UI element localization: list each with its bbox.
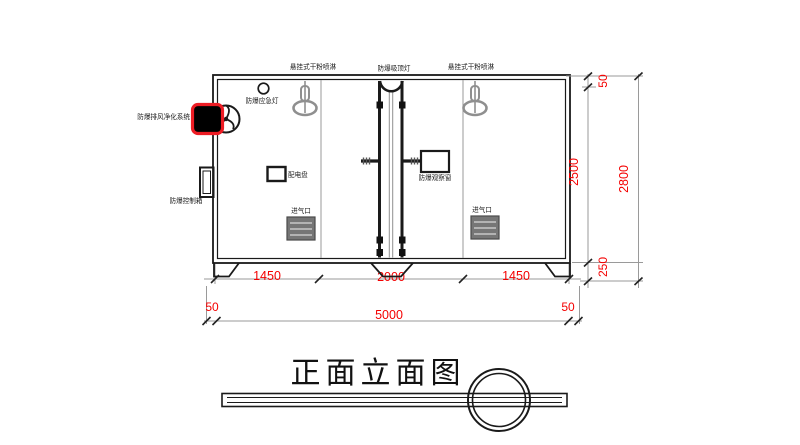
dimension-ticks xyxy=(584,73,643,286)
sprinkler-icon-right xyxy=(464,81,487,115)
dim-250: 250 xyxy=(596,257,610,277)
drawing-title: 正面立面图 xyxy=(291,357,466,390)
label-control-box: 防爆控制箱 xyxy=(170,196,203,205)
dim-1450-right: 1450 xyxy=(502,269,530,283)
fan-hub xyxy=(224,117,228,121)
section-circle xyxy=(468,369,530,431)
duct-node xyxy=(377,237,384,244)
duct-node xyxy=(377,102,384,109)
emergency-light-icon xyxy=(258,83,269,94)
dim-5000-total: 5000 xyxy=(375,308,403,322)
label-air-inlet-right: 进气口 xyxy=(472,205,492,214)
air-inlet-louver-right xyxy=(471,216,499,239)
ceiling-lamp-dome xyxy=(380,81,403,91)
label-ceiling-lamp: 防爆吸顶灯 xyxy=(378,64,411,73)
booth-inner-wall xyxy=(218,80,566,259)
observation-window xyxy=(421,151,449,172)
dim-2800: 2800 xyxy=(617,165,631,193)
elevation-drawing: 1450 2000 1450 50 5000 50 50 xyxy=(0,0,800,445)
support-foot-left xyxy=(214,263,239,277)
duct-node xyxy=(399,237,406,244)
title-block: 正面立面图 xyxy=(222,357,567,431)
distribution-panel xyxy=(268,167,286,181)
dim-50-bottom-right: 50 xyxy=(561,300,575,314)
label-purification-system: 防爆排风净化系统 xyxy=(137,112,190,121)
duct-node xyxy=(377,249,384,256)
control-box xyxy=(200,168,214,198)
dim-50-right-top: 50 xyxy=(596,74,610,88)
air-inlet-louver-left xyxy=(287,217,315,240)
label-sprinkler-right: 悬挂式干粉喷淋 xyxy=(448,62,495,71)
purification-unit xyxy=(193,105,240,134)
dim-2500: 2500 xyxy=(567,158,581,186)
label-emergency-light: 防爆应急灯 xyxy=(246,96,279,105)
label-air-inlet-left: 进气口 xyxy=(291,206,311,215)
section-rod xyxy=(222,394,567,407)
label-distribution-panel: 配电盘 xyxy=(288,170,308,179)
duct-node xyxy=(399,249,406,256)
dim-1450-left: 1450 xyxy=(253,269,281,283)
exhaust-duct xyxy=(361,81,420,258)
component-labels: 悬挂式干粉喷淋 防爆吸顶灯 悬挂式干粉喷淋 防爆应急灯 防爆排风净化系统 防爆控… xyxy=(137,62,494,215)
duct-node xyxy=(399,102,406,109)
sprinkler-icon-left xyxy=(294,81,317,115)
purification-box xyxy=(193,105,223,134)
dim-50-bottom-left: 50 xyxy=(205,300,219,314)
label-sprinkler-left: 悬挂式干粉喷淋 xyxy=(290,62,337,71)
dimension-chains: 1450 2000 1450 50 5000 50 50 xyxy=(203,73,644,326)
support-foot-right xyxy=(545,263,570,277)
label-observation-window: 防爆观察窗 xyxy=(419,173,452,182)
